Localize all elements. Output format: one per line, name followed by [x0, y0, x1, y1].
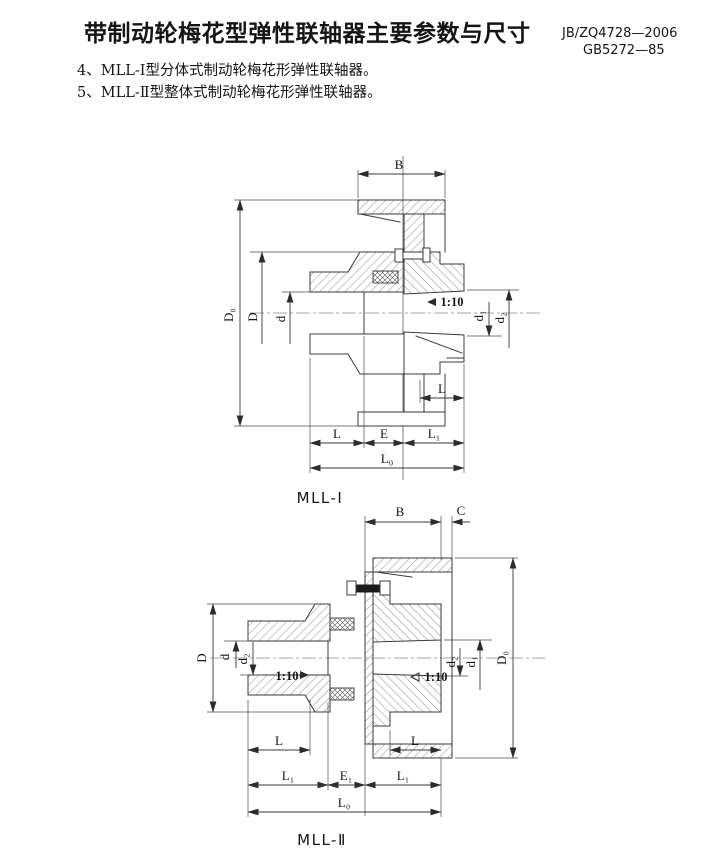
fig1-dim-label-d-major: D: [245, 312, 260, 321]
fig1-dim-label-l-hub: L: [438, 381, 446, 396]
fig1-dim-label-b: B: [395, 157, 404, 172]
fig2-dim-label-d-minor: d: [217, 653, 232, 660]
fig2-elastomer-element: [330, 618, 354, 700]
fig2-dim-label-l1-right: L₁: [397, 768, 409, 783]
fig1-taper-arrow-icon: [427, 298, 436, 306]
fig2-dim-label-e1: E₁: [340, 768, 352, 783]
fig1-dim-label-d0-major: D₀: [221, 308, 236, 322]
fig1-dim-label-e: E: [380, 426, 388, 441]
fig2-caption: MLL-Ⅱ: [297, 831, 347, 849]
fig1-dim-label-l1: L₁: [428, 426, 440, 441]
fig2-dim-label-l-left: L: [275, 733, 283, 748]
fig2-taper-label-left: 1:10: [276, 669, 299, 683]
fig1-dim-label-l0: L₀: [381, 451, 393, 466]
catalog-page: 带制动轮梅花型弹性联轴器主要参数与尺寸 JB/ZQ4728—2006 GB527…: [0, 0, 725, 855]
fig2-dim-label-c: C: [457, 503, 466, 518]
fig1-dim-label-d2: d₂: [492, 312, 507, 323]
fig2-dim-label-d1: d₁: [463, 656, 478, 667]
fig1-taper-label: 1:10: [441, 295, 464, 309]
fig2-dim-label-d0: D₀: [494, 651, 509, 665]
fig2-dim-label-l1-left: L₁: [282, 768, 294, 783]
fig2-dim-label-d-major: D: [194, 653, 209, 662]
fig2-dim-label-d2-right: d₂: [443, 656, 458, 667]
figure-mll-2: 1:10 1:10 B C D d d₂ d₂ d₁ D₀ L L L₁ E₁ …: [194, 503, 545, 849]
fig2-dim-label-d2-left: d₂: [235, 653, 250, 664]
fig2-dim-label-l-right: L: [411, 733, 419, 748]
fig2-dim-label-l0: L₀: [338, 795, 350, 810]
fig1-caption: MLL-Ⅰ: [297, 489, 344, 507]
fig1-dim-label-d-minor: d: [273, 315, 288, 322]
technical-drawing-canvas: 1:10 B D₀ D d d₁ d₂ L L E L₁ L₀ MLL-Ⅰ: [0, 0, 725, 855]
fig2-taper-label-right: 1:10: [425, 670, 448, 684]
fig2-dim-label-b: B: [396, 504, 405, 519]
figure-mll-1: 1:10 B D₀ D d d₁ d₂ L L E L₁ L₀ MLL-Ⅰ: [221, 156, 540, 507]
fig1-elastomer-element: [373, 271, 398, 283]
fig1-dim-label-d1: d₁: [471, 310, 486, 321]
fig1-dim-label-l: L: [333, 426, 341, 441]
